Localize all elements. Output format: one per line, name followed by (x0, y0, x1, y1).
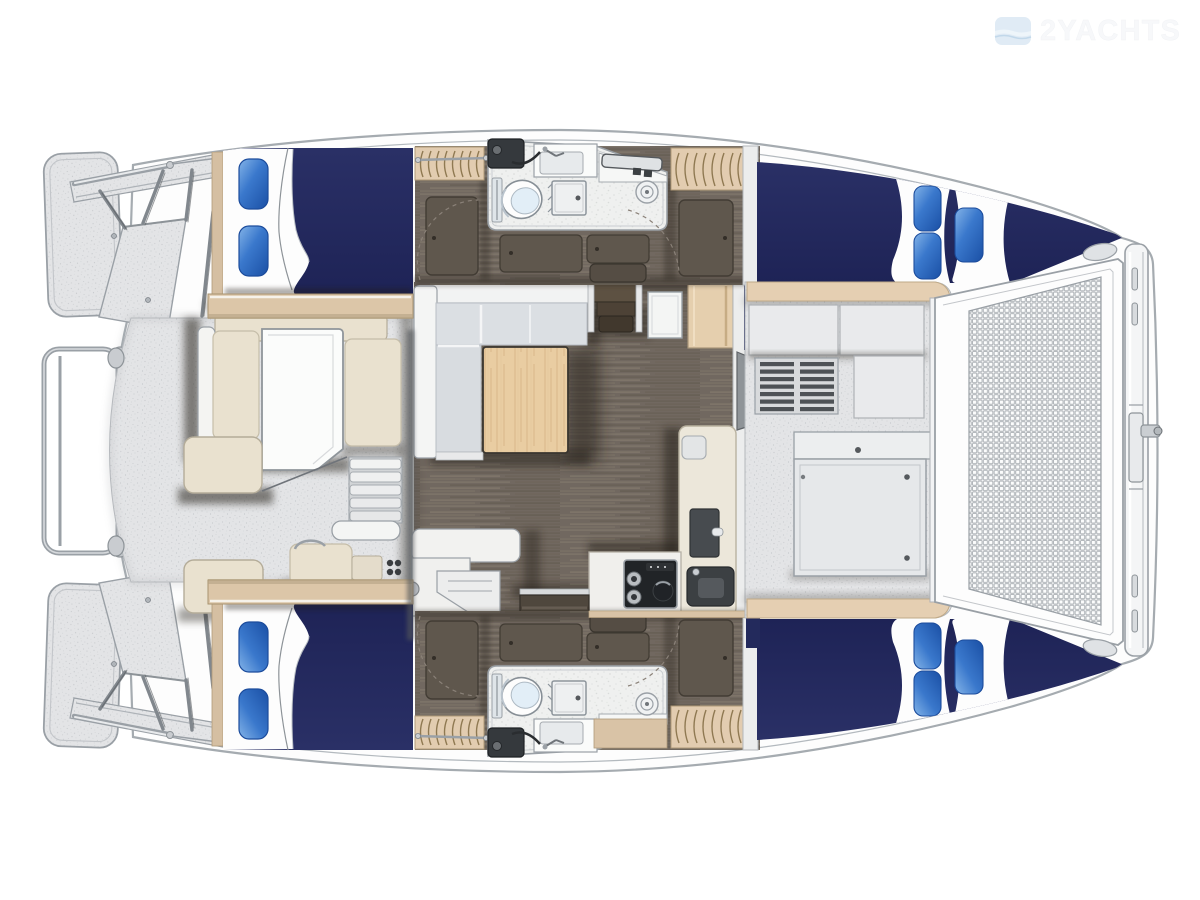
svg-text:2YACHTS: 2YACHTS (1040, 15, 1181, 47)
